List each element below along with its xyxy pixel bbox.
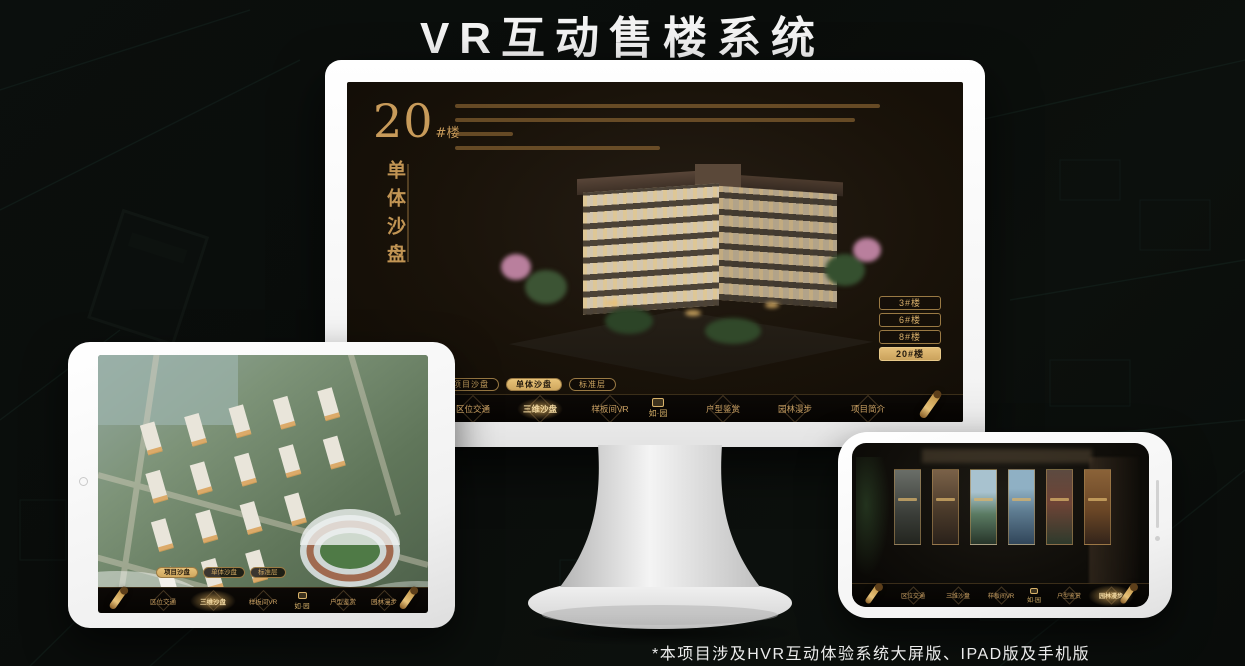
scene-panel-lounge[interactable] (1084, 469, 1111, 545)
panel-caption (1012, 498, 1031, 501)
subtab-standard-floor[interactable]: 标准层 (569, 378, 616, 391)
scene-panel-building[interactable] (1008, 469, 1035, 545)
scene-panel-interior[interactable] (932, 469, 959, 545)
nav-item-3d-sandtable[interactable]: 三维沙盘 (937, 584, 979, 607)
sandtable-subtabs: 项目沙盘 单体沙盘 标准层 (443, 378, 616, 391)
nav-item-model-room-vr[interactable]: 样板间VR (240, 588, 286, 613)
phone-speaker-icon (1156, 480, 1159, 528)
tree-decor (705, 318, 761, 344)
tree-decor (525, 270, 567, 304)
phone-bottom-nav: 区位交通 三维沙盘 样板间VR 如·园 户型鉴赏 园林漫步 (852, 583, 1149, 607)
brand-emblem-icon (298, 592, 307, 599)
ground-light (605, 300, 619, 306)
building-button-20[interactable]: 20#楼 (879, 347, 941, 361)
promo-canvas: VR互动售楼系统 20#楼 单体沙盘 (0, 0, 1245, 666)
nav-item-floorplan-gallery[interactable]: 户型鉴赏 (320, 588, 366, 613)
building-button-8[interactable]: 8#楼 (879, 330, 941, 344)
building-facade-right (719, 186, 837, 308)
scroll-icon[interactable] (864, 583, 882, 604)
subtitle-rule (407, 164, 409, 262)
nav-item-model-room-vr[interactable]: 样板间VR (580, 395, 640, 422)
subtab-single-sandtable[interactable]: 单体沙盘 (506, 378, 562, 391)
building-button-3[interactable]: 3#楼 (879, 296, 941, 310)
phone-screen: 区位交通 三维沙盘 样板间VR 如·园 户型鉴赏 园林漫步 (852, 443, 1149, 607)
nav-item-floorplan-gallery[interactable]: 户型鉴赏 (1048, 584, 1090, 607)
tablet-screen: 项目沙盘 单体沙盘 标准层 区位交通 三维沙盘 样板间VR 如·园 户型鉴赏 园… (98, 355, 428, 613)
block-heading: 20#楼 (373, 98, 459, 144)
ground-light (685, 310, 701, 316)
nav-item-3d-sandtable[interactable]: 三维沙盘 (190, 588, 236, 613)
nav-item-3d-sandtable[interactable]: 三维沙盘 (510, 395, 570, 422)
phone-camera-icon (1155, 536, 1160, 541)
scene-panel-garden[interactable] (970, 469, 997, 545)
pink-tree-decor (501, 254, 531, 280)
nav-item-model-room-vr[interactable]: 样板间VR (980, 584, 1022, 607)
tablet-device: 项目沙盘 单体沙盘 标准层 区位交通 三维沙盘 样板间VR 如·园 户型鉴赏 园… (68, 342, 455, 628)
brand-emblem-icon (1030, 588, 1038, 594)
intro-text-line (455, 132, 513, 136)
ground-light (765, 302, 779, 308)
block-subtitle: 单体沙盘 (381, 160, 408, 272)
tablet-subtab-standard-floor[interactable]: 标准层 (250, 567, 286, 578)
brand-emblem-icon (652, 398, 664, 407)
brand-logo[interactable]: 如·园 (286, 588, 318, 613)
tablet-subtabs: 项目沙盘 单体沙盘 标准层 (156, 567, 286, 578)
panel-caption (898, 498, 917, 501)
nav-item-floorplan-gallery[interactable]: 户型鉴赏 (693, 395, 753, 422)
interior-plant-decor (856, 457, 890, 577)
nav-item-garden-walk[interactable]: 园林漫步 (765, 395, 825, 422)
panel-caption (1088, 498, 1107, 501)
phone-device: 区位交通 三维沙盘 样板间VR 如·园 户型鉴赏 园林漫步 (838, 432, 1172, 618)
nav-item-garden-walk[interactable]: 园林漫步 (364, 588, 404, 613)
page-title: VR互动售楼系统 (0, 2, 1245, 66)
tablet-camera-icon (79, 477, 88, 486)
building-facade-left (583, 183, 719, 315)
intro-text-line (455, 118, 855, 122)
panel-caption (936, 498, 955, 501)
brand-logo[interactable]: 如·园 (638, 395, 678, 422)
nav-item-project-intro[interactable]: 项目简介 (838, 395, 898, 422)
block-number: 20 (373, 94, 434, 148)
panel-caption (974, 498, 993, 501)
scene-panel-gate[interactable] (1046, 469, 1073, 545)
scroll-icon[interactable] (108, 587, 127, 611)
intro-text-line (455, 104, 880, 108)
tablet-bottom-nav: 区位交通 三维沙盘 样板间VR 如·园 户型鉴赏 园林漫步 (98, 587, 428, 613)
tablet-subtab-single-sandtable[interactable]: 单体沙盘 (203, 567, 245, 578)
panel-caption (1050, 498, 1069, 501)
scroll-icon[interactable] (918, 390, 942, 419)
building-button-6[interactable]: 6#楼 (879, 313, 941, 327)
nav-item-location-traffic[interactable]: 区位交通 (892, 584, 934, 607)
tablet-subtab-project-sandtable[interactable]: 项目沙盘 (156, 567, 198, 578)
scene-panel-courtyard[interactable] (894, 469, 921, 545)
tree-decor (605, 308, 653, 334)
monitor-stand (520, 445, 800, 645)
brand-logo[interactable]: 如·园 (1020, 584, 1048, 607)
pink-tree-decor (853, 238, 881, 262)
building-3d-model[interactable] (455, 150, 915, 385)
interior-ceiling-decor (922, 449, 1092, 463)
nav-item-location-traffic[interactable]: 区位交通 (140, 588, 186, 613)
footnote-text: *本项目涉及HVR互动体验系统大屏版、IPAD版及手机版 (652, 640, 1242, 664)
